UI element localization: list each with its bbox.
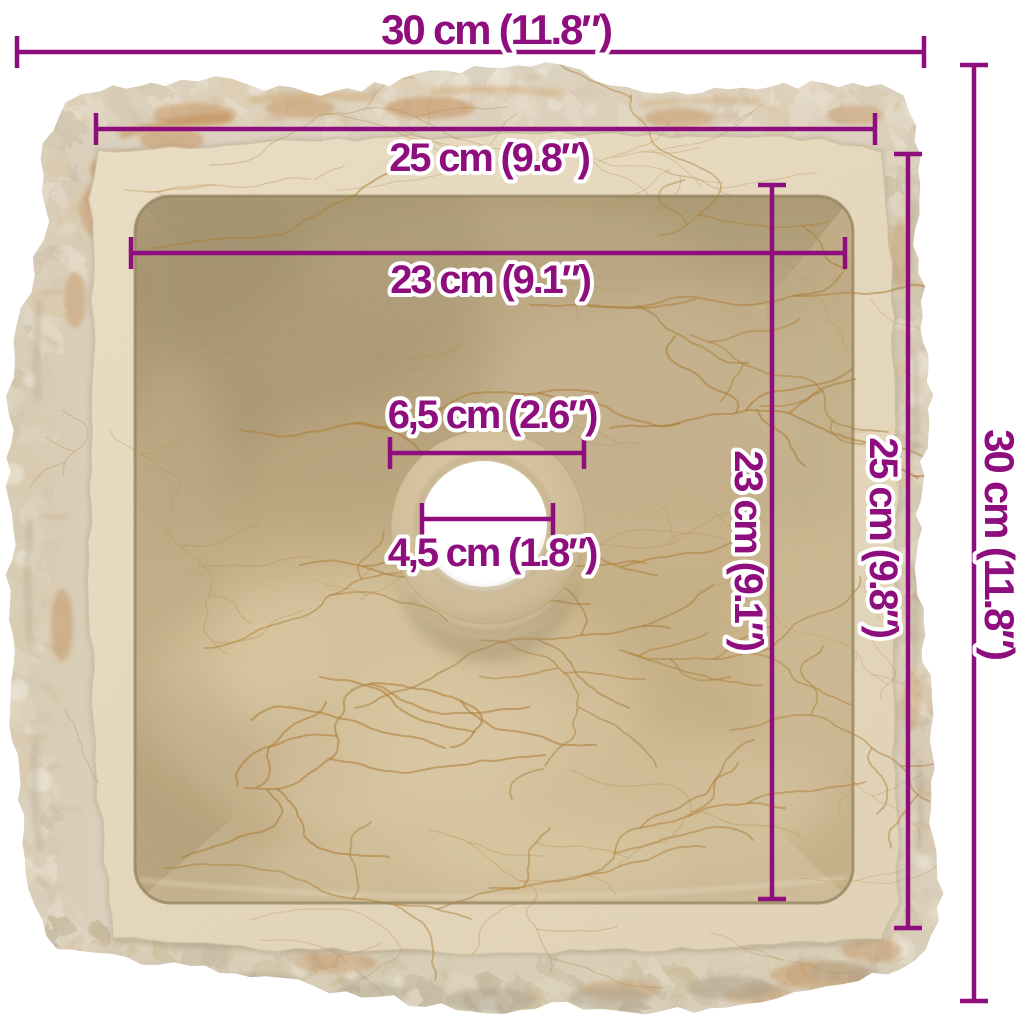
svg-text:25 cm (9.8″): 25 cm (9.8″) <box>389 136 589 180</box>
svg-text:25 cm (9.8″): 25 cm (9.8″) <box>861 437 905 637</box>
svg-text:30 cm (11.8″): 30 cm (11.8″) <box>976 429 1023 659</box>
svg-text:6,5 cm (2.6″): 6,5 cm (2.6″) <box>388 393 597 437</box>
svg-text:30 cm (11.8″): 30 cm (11.8″) <box>381 6 611 53</box>
svg-text:23 cm (9.1″): 23 cm (9.1″) <box>390 258 590 302</box>
svg-text:4,5 cm (1.8″): 4,5 cm (1.8″) <box>388 531 597 575</box>
svg-text:23 cm (9.1″): 23 cm (9.1″) <box>726 450 770 650</box>
